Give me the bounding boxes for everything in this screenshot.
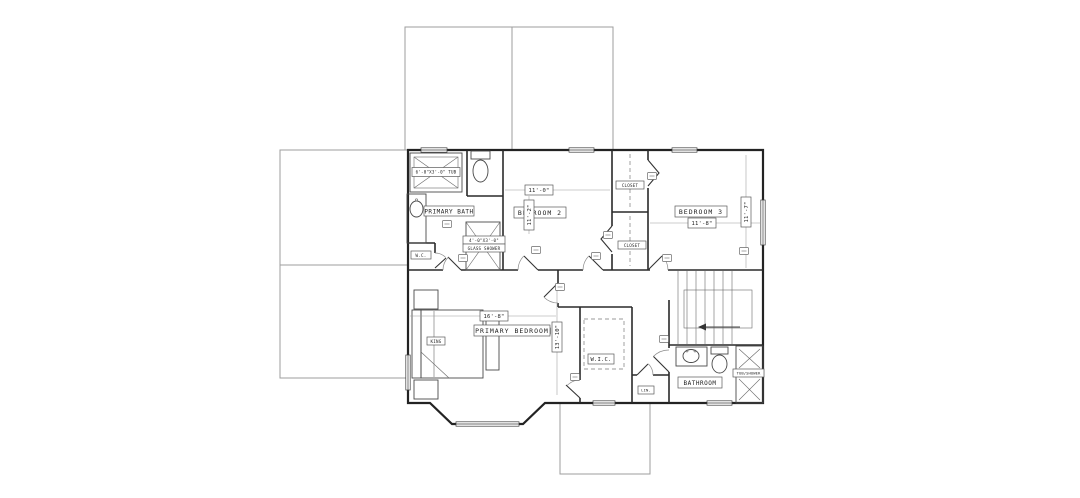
svg-text:11'-7": 11'-7" — [744, 201, 750, 222]
svg-text:11'-0": 11'-0" — [528, 188, 549, 194]
label-bedroom3-depth: 11'-7" — [741, 197, 751, 227]
window — [672, 148, 697, 152]
label-closet-upper: CLOSET — [616, 181, 644, 189]
svg-text:PRIMARY BATH: PRIMARY BATH — [424, 209, 473, 216]
label-bedroom3: BEDROOM 3 — [675, 206, 727, 217]
nightstand — [414, 380, 438, 399]
vanity-sink — [676, 347, 707, 366]
label-king-bed: KING — [427, 337, 445, 345]
svg-text:CLOSET: CLOSET — [622, 183, 639, 188]
door-wic — [566, 380, 580, 398]
door-tag — [604, 232, 613, 239]
door-tag — [556, 284, 565, 291]
door-bathroom — [653, 350, 669, 372]
svg-text:BATHROOM: BATHROOM — [684, 380, 717, 387]
label-closet-lower: CLOSET — [618, 241, 646, 249]
door-tag — [443, 221, 452, 228]
vanity-sink — [407, 194, 426, 243]
door-tags — [443, 173, 749, 381]
svg-text:16'-8": 16'-8" — [483, 314, 504, 320]
door-linen — [637, 364, 653, 375]
door-tag — [592, 253, 601, 260]
label-bedroom3-width: 11'-8" — [688, 218, 716, 228]
door-tag — [663, 255, 672, 262]
svg-text:11'-2": 11'-2" — [527, 204, 533, 225]
label-shower-size: 4'-0"X3'-0" — [463, 236, 505, 244]
svg-text:PRIMARY BEDROOM: PRIMARY BEDROOM — [475, 327, 549, 335]
label-primary-bedroom-width: 16'-8" — [480, 311, 508, 321]
svg-text:W.C.: W.C. — [416, 253, 427, 258]
toilet — [711, 347, 728, 373]
toilet — [471, 151, 490, 182]
svg-text:13'-10": 13'-10" — [555, 325, 561, 350]
bay-window — [456, 422, 519, 426]
door-tag — [571, 374, 580, 381]
svg-text:6'-0"X3'-0" TUB: 6'-0"X3'-0" TUB — [416, 170, 457, 175]
svg-text:BEDROOM 3: BEDROOM 3 — [679, 208, 723, 216]
interior-walls — [408, 150, 763, 403]
label-primary-bedroom: PRIMARY BEDROOM — [474, 325, 550, 336]
door-closet-lower-bifold — [601, 226, 612, 252]
dimension-lines — [410, 155, 761, 395]
window — [406, 355, 410, 390]
labels: 6'-0"X3'-0" TUB PRIMARY BATH W.C. 4'-0"X… — [411, 168, 764, 395]
svg-text:4'-0"X3'-0": 4'-0"X3'-0" — [469, 238, 499, 243]
bed-king — [412, 310, 483, 378]
nightstand — [414, 290, 438, 309]
label-bedroom2: BEDROOM 2 — [514, 207, 566, 218]
window — [569, 148, 594, 152]
svg-text:TUB/SHOWER: TUB/SHOWER — [737, 371, 761, 376]
door-tag — [459, 255, 468, 262]
window — [593, 401, 615, 405]
svg-text:CLOSET: CLOSET — [624, 243, 641, 248]
floor-plan-drawing: 6'-0"X3'-0" TUB PRIMARY BATH W.C. 4'-0"X… — [0, 0, 1080, 498]
label-primary-bedroom-depth: 13'-10" — [552, 322, 562, 352]
stair-direction-arrow — [698, 324, 740, 331]
label-wic: W.I.C. — [588, 354, 614, 364]
floor-plan-sheet: 6'-0"X3'-0" TUB PRIMARY BATH W.C. 4'-0"X… — [0, 0, 1080, 498]
door-water-closet — [435, 253, 446, 268]
svg-text:GLASS SHOWER: GLASS SHOWER — [468, 246, 501, 251]
svg-text:KING: KING — [431, 339, 442, 344]
door-tag — [740, 248, 749, 255]
door-tag — [660, 336, 669, 343]
label-primary-bath: PRIMARY BATH — [424, 206, 474, 216]
svg-text:W.I.C.: W.I.C. — [590, 357, 611, 363]
label-water-closet: W.C. — [411, 251, 431, 259]
primary-bedroom-furniture — [412, 290, 499, 399]
label-bathroom: BATHROOM — [678, 377, 722, 388]
door-bedroom2-closet — [518, 256, 538, 270]
svg-text:LIN.: LIN. — [641, 388, 651, 393]
window — [707, 401, 732, 405]
label-tub: 6'-0"X3'-0" TUB — [412, 168, 460, 177]
staircase — [678, 271, 752, 344]
door-tag — [648, 173, 657, 180]
stair-railing — [684, 290, 752, 328]
label-tub-shower: TUB/SHOWER — [733, 369, 764, 377]
label-bedroom2-width: 11'-0" — [525, 185, 553, 195]
label-bedroom2-depth: 11'-2" — [524, 200, 534, 230]
door-tag — [532, 247, 541, 254]
label-linen: LIN. — [638, 386, 654, 394]
label-shower-type: GLASS SHOWER — [463, 244, 505, 252]
window — [421, 148, 447, 152]
svg-text:11'-8": 11'-8" — [691, 221, 712, 227]
window — [761, 200, 765, 245]
